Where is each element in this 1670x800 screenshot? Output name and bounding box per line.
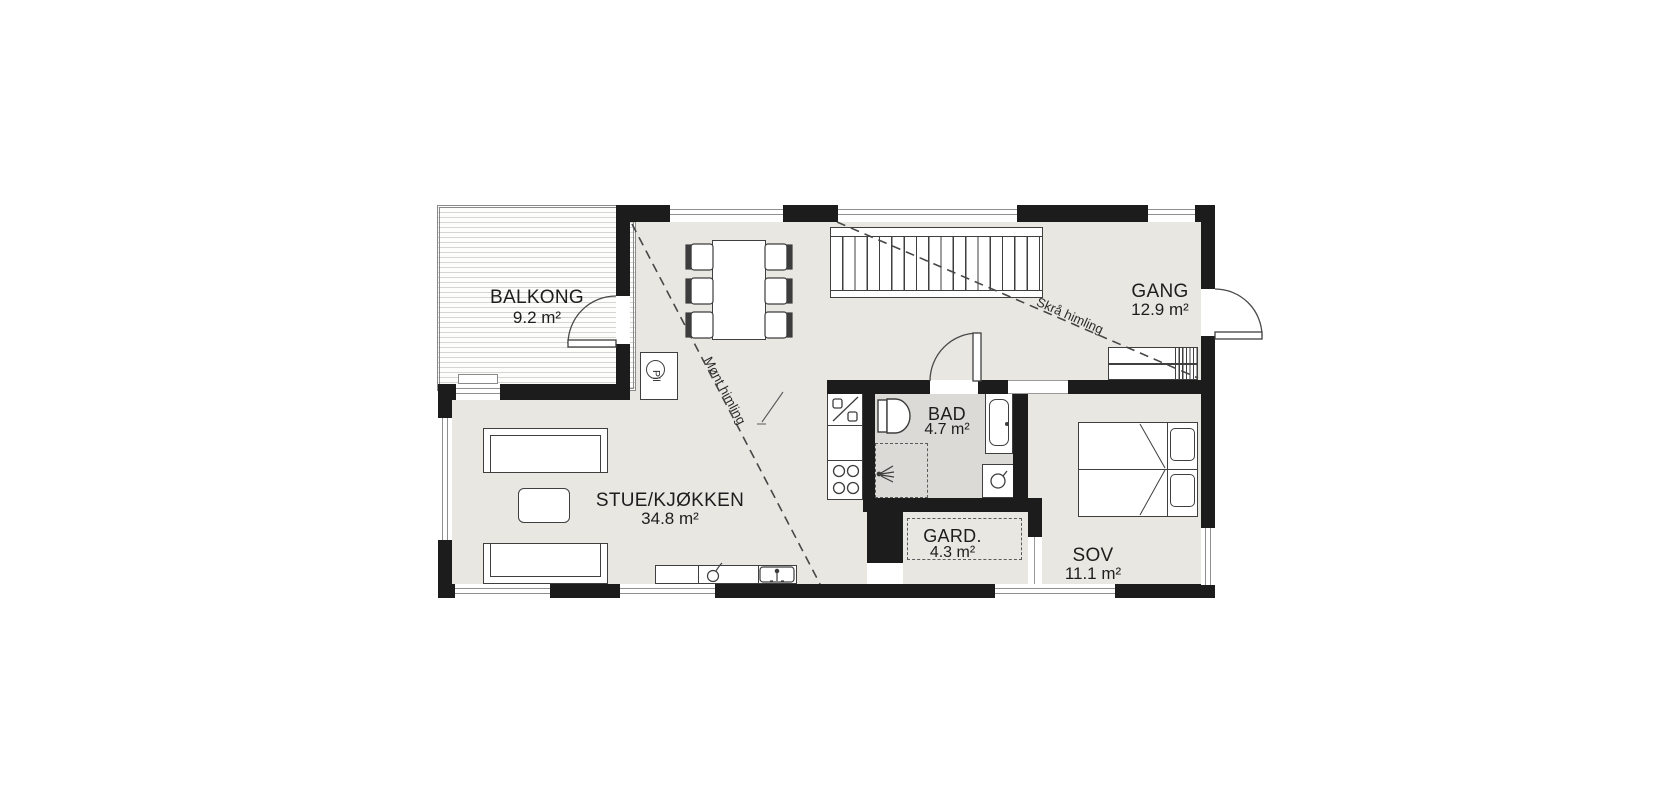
floor-plan: Pil: [0, 0, 1670, 800]
toilet-icon: [878, 399, 910, 433]
oven-flap-line: [757, 392, 783, 424]
vanity-faucet: [1005, 422, 1009, 426]
linework-overlay: [0, 0, 1670, 800]
sink-basin-icon: [708, 563, 723, 582]
bed-crease-lines: [1140, 424, 1165, 515]
balkong-label: BALKONG: [457, 287, 617, 309]
pipe-label: Pil: [650, 370, 662, 382]
bad-area: 4.7 m²: [907, 421, 987, 439]
gang-area: 12.9 m²: [1095, 300, 1225, 320]
dishwasher-icon: [833, 397, 858, 421]
dining-chairs: [686, 244, 792, 338]
balkong-area: 9.2 m²: [457, 308, 617, 328]
kitchen-sink-icon: [760, 567, 794, 582]
bathroom-door: [930, 333, 981, 381]
stue-area: 34.8 m²: [590, 509, 750, 529]
gard-area: 4.3 m²: [900, 544, 1005, 562]
cooktop-icon: [834, 466, 859, 494]
sov-area: 11.1 m²: [1043, 564, 1143, 584]
shower-icon: [877, 466, 894, 482]
washing-machine-icon: [991, 471, 1007, 488]
